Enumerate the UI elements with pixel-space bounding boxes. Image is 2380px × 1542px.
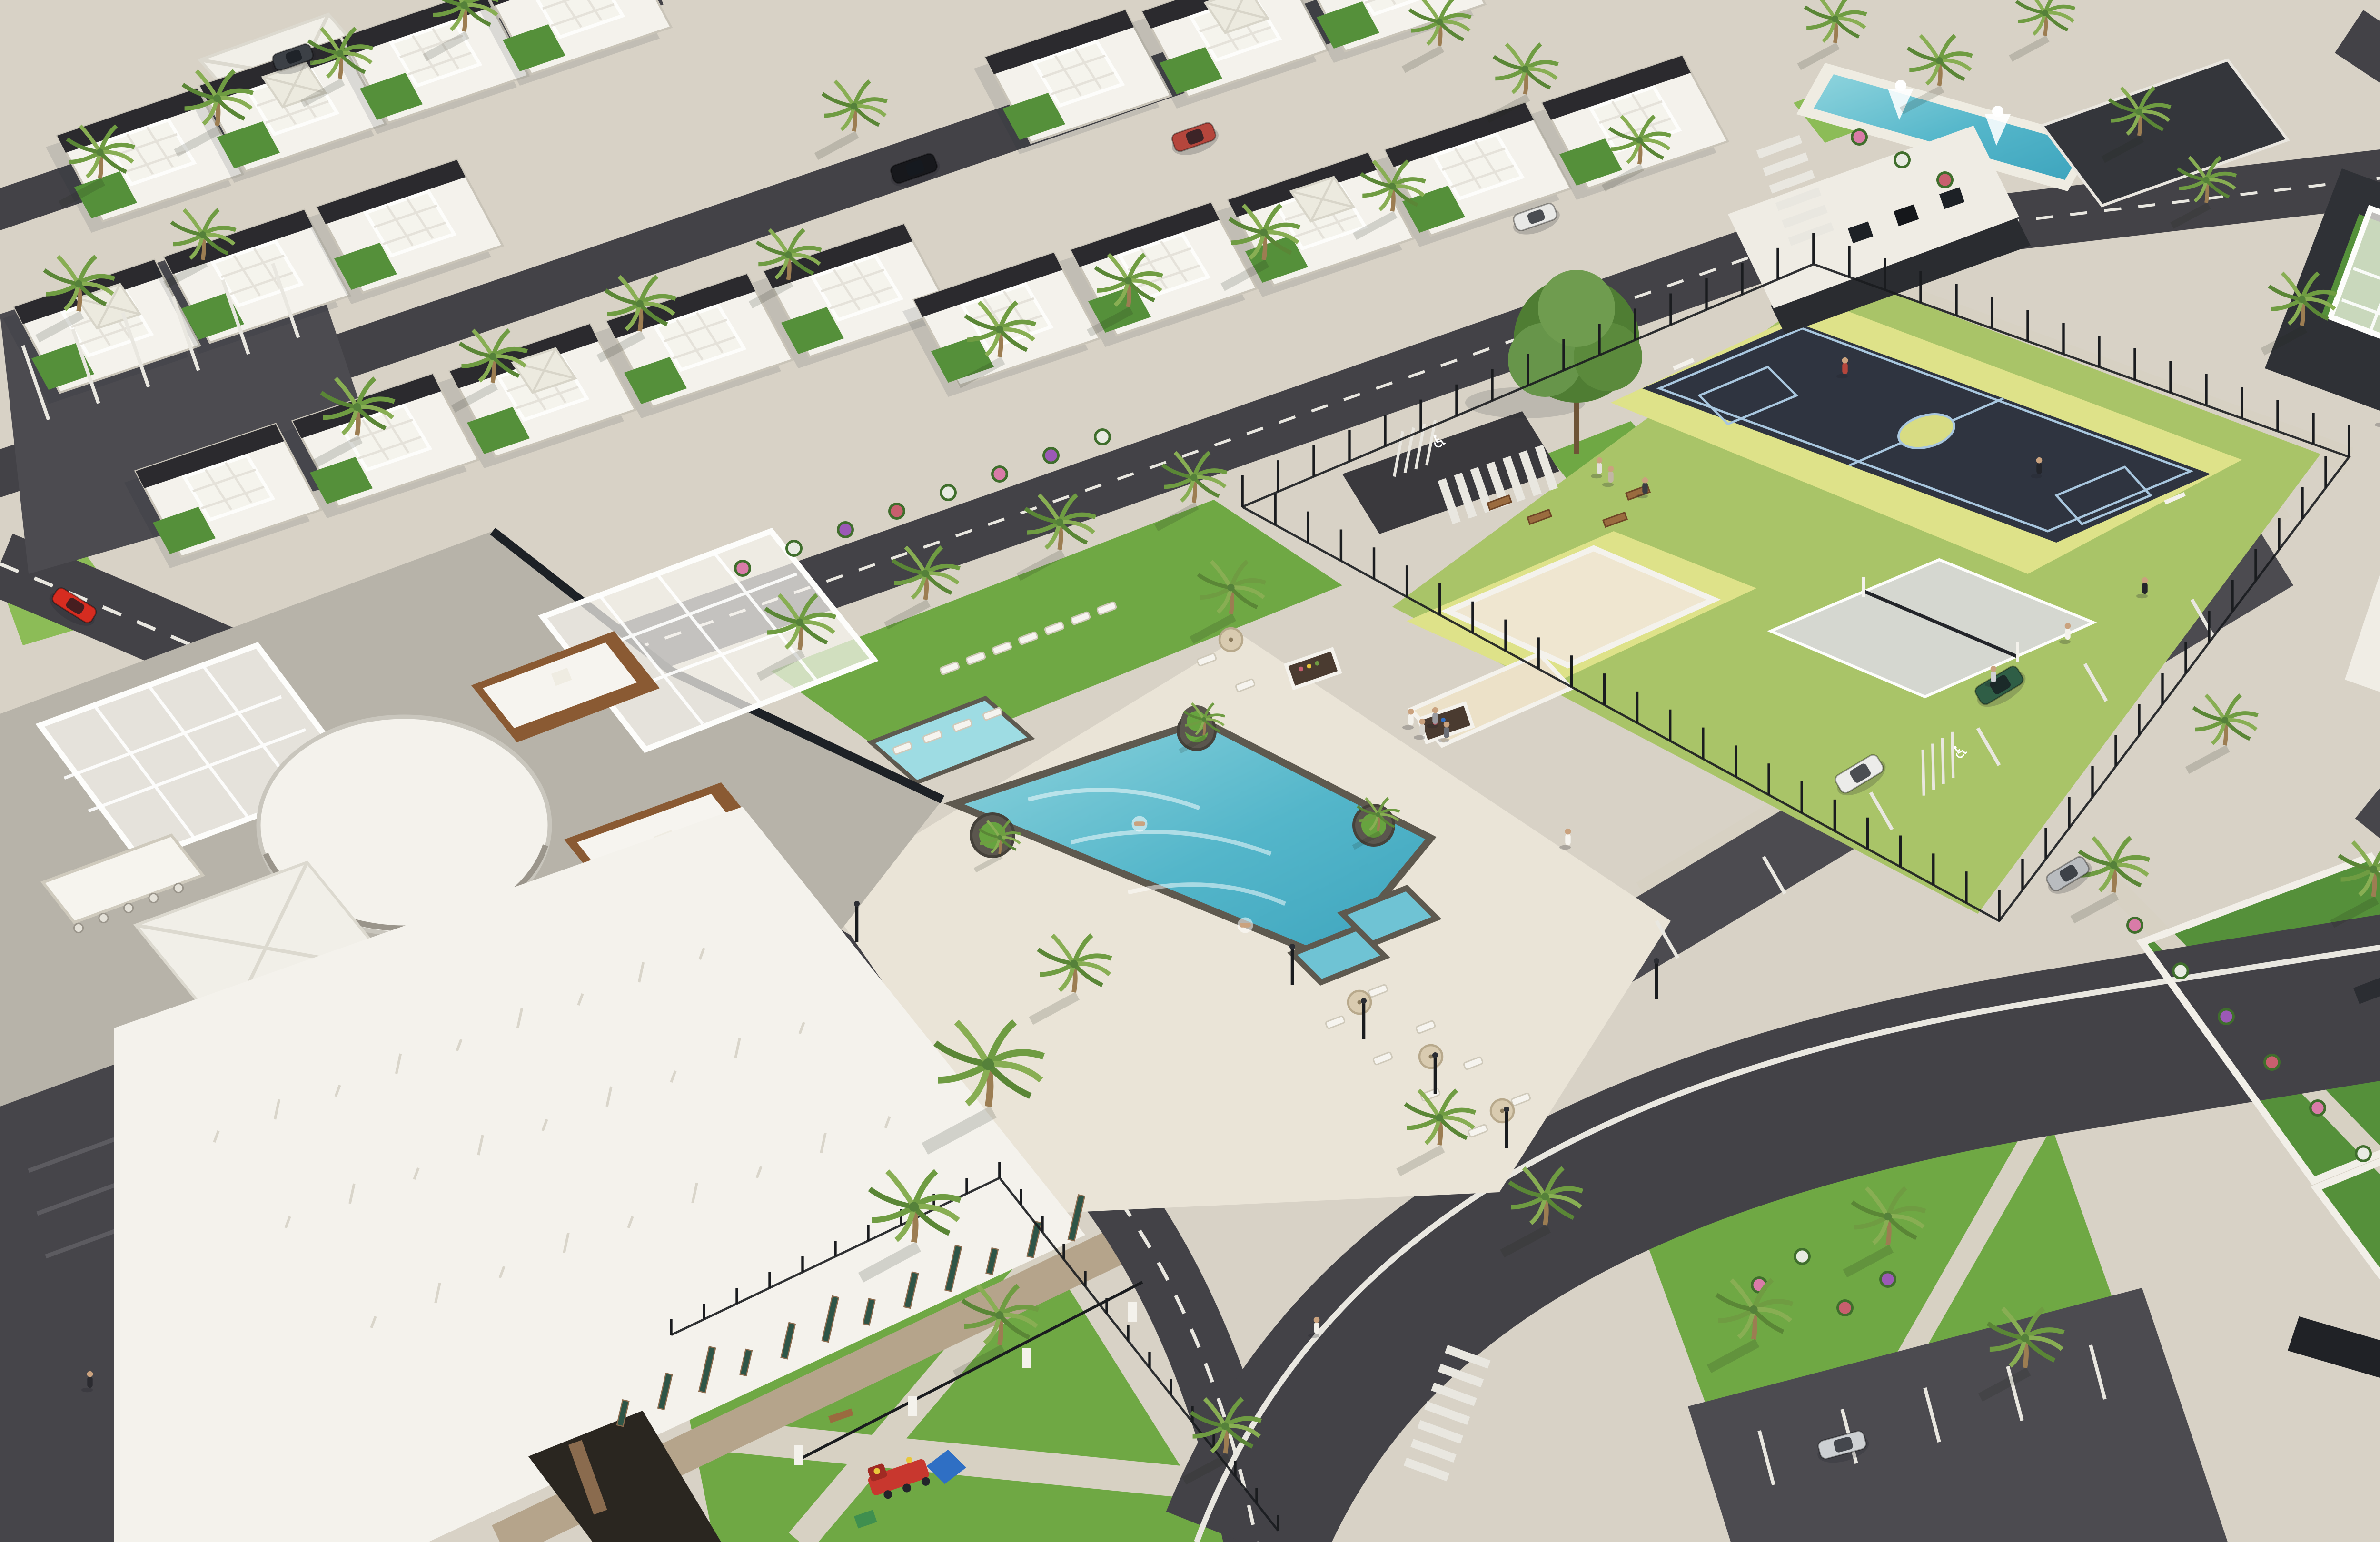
- person-body: [87, 1376, 92, 1388]
- person-head: [1419, 719, 1426, 725]
- flower-shrub: [1882, 1273, 1894, 1285]
- person-body: [1842, 363, 1847, 374]
- flower-shrub: [1096, 431, 1108, 443]
- fountain-spray-1: [1895, 80, 1906, 91]
- swimmer: [1240, 923, 1251, 928]
- person-head: [1314, 1317, 1320, 1323]
- flower-shrub: [1045, 449, 1057, 461]
- person-shadow: [1836, 374, 1848, 379]
- person-shadow: [1308, 1334, 1319, 1338]
- person-head: [1565, 829, 1571, 835]
- lamp-head: [1289, 944, 1295, 949]
- lamp-head: [1504, 1107, 1509, 1112]
- fence-post-white-2: [908, 1396, 917, 1416]
- scene-svg: ♿♿: [0, 0, 2380, 1542]
- aerial-render-canvas: ♿♿: [0, 0, 2380, 1542]
- fence-post-white-4: [1128, 1302, 1137, 1322]
- flower-shrub: [1939, 174, 1951, 186]
- fountain-spray-2: [1992, 106, 2003, 117]
- person-shadow: [1427, 724, 1438, 729]
- person-shadow: [2136, 594, 2148, 599]
- lamp-head: [854, 901, 860, 907]
- person-shadow: [1985, 682, 1996, 687]
- person-head: [1432, 707, 1438, 713]
- person-head: [2142, 577, 2148, 583]
- bar-stool: [149, 893, 158, 902]
- bar-stool: [174, 883, 183, 892]
- person-head: [87, 1371, 93, 1377]
- lamp-head: [1654, 958, 1659, 964]
- person-body: [2142, 583, 2147, 594]
- umbrella-pole: [1229, 638, 1233, 642]
- flower-shrub: [2311, 1102, 2323, 1114]
- person-shadow: [1402, 725, 1414, 730]
- person-body: [1608, 471, 1613, 483]
- bar-stool: [99, 913, 108, 922]
- person-body: [1444, 727, 1449, 738]
- person-body: [1419, 724, 1425, 735]
- person-body: [1432, 712, 1438, 724]
- person-body: [1314, 1322, 1319, 1334]
- flower-shrub: [839, 524, 851, 535]
- bar-stool: [74, 923, 83, 932]
- flower-shrub: [2220, 1010, 2232, 1022]
- fence-post-white-1: [794, 1445, 803, 1465]
- flower-shrub: [993, 468, 1005, 480]
- person-shadow: [1591, 474, 1602, 479]
- person-shadow: [2059, 640, 2071, 644]
- flower-shrub: [2174, 965, 2186, 977]
- tree-canopy-4: [1538, 270, 1615, 347]
- person-head: [1444, 722, 1450, 728]
- flower-shrub: [891, 505, 902, 517]
- flower-shrub: [1796, 1250, 1808, 1262]
- person-body: [2065, 628, 2070, 640]
- person-head: [1991, 666, 1997, 672]
- person-shadow: [1438, 738, 1449, 743]
- person-shadow: [1414, 735, 1425, 740]
- person-body: [1991, 671, 1996, 682]
- person-head: [1842, 357, 1848, 364]
- flower-shrub: [788, 542, 800, 554]
- person-head: [2065, 623, 2071, 629]
- person-shadow: [81, 1388, 93, 1393]
- person-shadow: [1602, 483, 1614, 487]
- person-head: [1597, 457, 1603, 464]
- bar-stool: [124, 903, 133, 912]
- flower-shrub: [2129, 919, 2141, 931]
- person-shadow: [2031, 474, 2042, 479]
- lamp-head: [1361, 998, 1367, 1004]
- person-head: [1408, 709, 1414, 715]
- swimmer: [1134, 821, 1145, 826]
- fence-post-white-3: [1022, 1348, 1031, 1368]
- flower-shrub: [736, 562, 748, 574]
- person-body: [1408, 714, 1413, 725]
- person-body: [1642, 483, 1647, 494]
- person-shadow: [1559, 845, 1571, 850]
- flower-shrub: [1896, 154, 1908, 166]
- lamp-head: [1432, 1052, 1438, 1058]
- person-body: [1597, 463, 1602, 474]
- person-head: [2036, 457, 2043, 464]
- person-shadow: [1636, 494, 1648, 499]
- flower-shrub: [2266, 1056, 2278, 1068]
- flower-shrub: [942, 486, 954, 498]
- flower-shrub: [1853, 131, 1865, 143]
- person-head: [1608, 466, 1614, 472]
- person-body: [2036, 463, 2042, 474]
- flower-shrub: [1839, 1302, 1851, 1314]
- flower-shrub: [2357, 1147, 2369, 1159]
- person-head: [1642, 477, 1648, 484]
- person-body: [1565, 834, 1570, 845]
